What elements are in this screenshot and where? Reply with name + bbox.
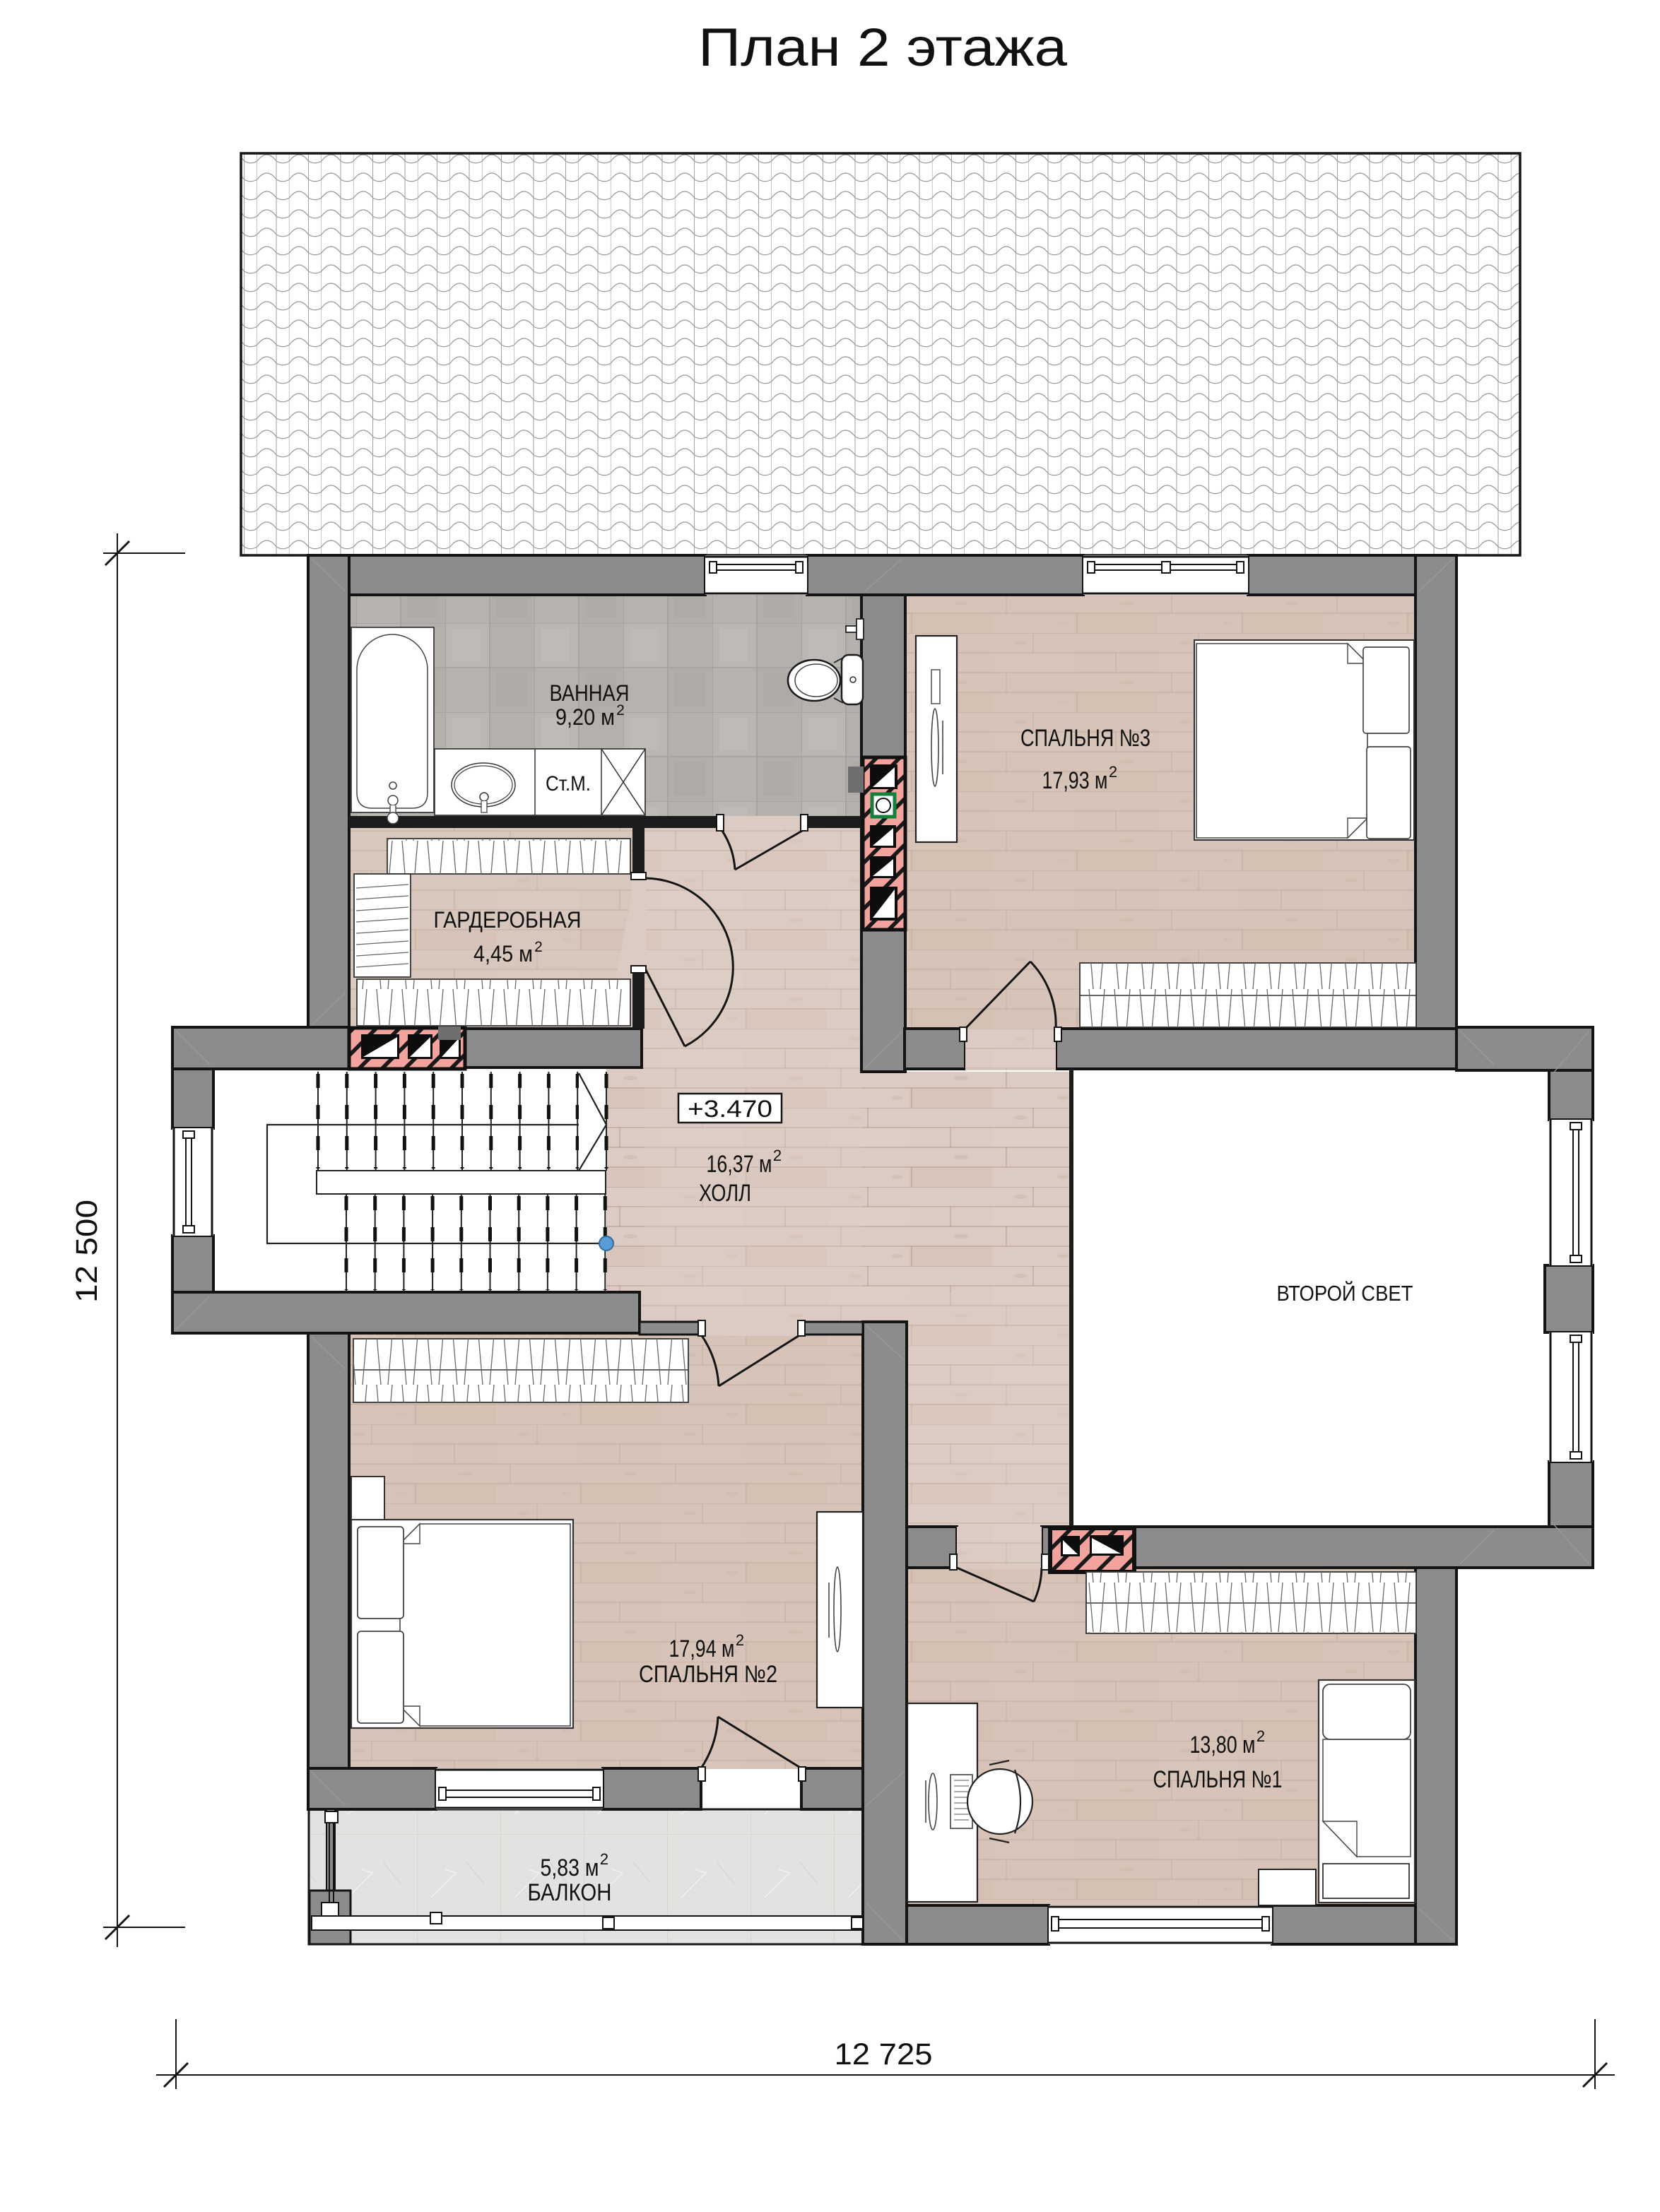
svg-text:17,93 м: 17,93 м: [1042, 767, 1108, 794]
svg-text:ВТОРОЙ СВЕТ: ВТОРОЙ СВЕТ: [1277, 1280, 1413, 1306]
svg-text:13,80 м: 13,80 м: [1190, 1732, 1256, 1758]
svg-text:ГАРДЕРОБНАЯ: ГАРДЕРОБНАЯ: [434, 907, 582, 933]
svg-text:2: 2: [1109, 763, 1117, 781]
svg-text:16,37 м: 16,37 м: [707, 1151, 772, 1178]
svg-text:4,45 м: 4,45 м: [473, 941, 533, 966]
svg-text:9,20 м: 9,20 м: [555, 704, 615, 730]
svg-text:План 2 этажа: План 2 этажа: [698, 18, 1068, 78]
svg-text:17,94 м: 17,94 м: [669, 1636, 735, 1662]
svg-text:2: 2: [600, 1850, 608, 1868]
svg-text:БАЛКОН: БАЛКОН: [528, 1879, 612, 1906]
svg-text:12 725: 12 725: [835, 2037, 933, 2071]
svg-text:Ст.М.: Ст.М.: [546, 772, 591, 796]
svg-text:12 500: 12 500: [70, 1200, 104, 1303]
svg-text:5,83 м: 5,83 м: [541, 1855, 599, 1881]
svg-text:СПАЛЬНЯ №1: СПАЛЬНЯ №1: [1153, 1766, 1283, 1793]
svg-text:2: 2: [616, 702, 625, 718]
svg-text:2: 2: [736, 1631, 744, 1649]
svg-text:2: 2: [773, 1147, 782, 1164]
svg-text:СПАЛЬНЯ №3: СПАЛЬНЯ №3: [1020, 725, 1150, 752]
svg-text:СПАЛЬНЯ №2: СПАЛЬНЯ №2: [639, 1661, 777, 1688]
svg-text:+3.470: +3.470: [688, 1096, 772, 1123]
svg-text:ХОЛЛ: ХОЛЛ: [699, 1180, 751, 1207]
svg-text:2: 2: [1256, 1727, 1265, 1745]
svg-text:2: 2: [534, 939, 543, 955]
